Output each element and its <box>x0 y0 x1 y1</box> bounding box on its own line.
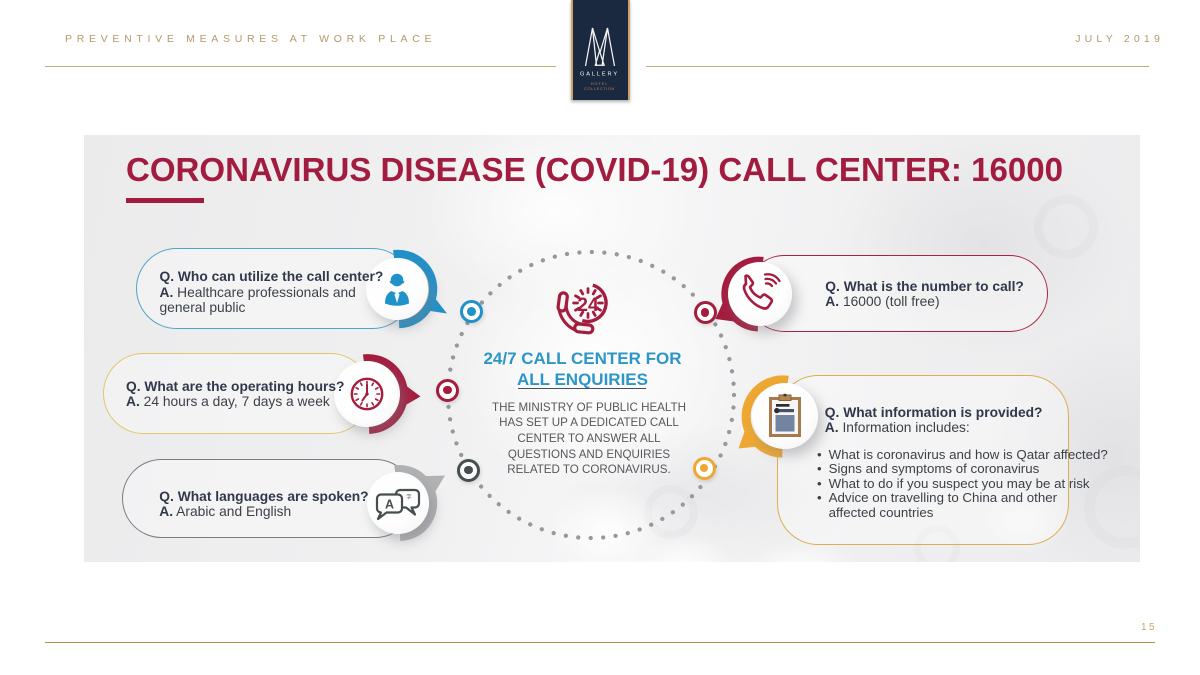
svg-text:字: 字 <box>406 493 411 501</box>
svg-text:GALLERY: GALLERY <box>580 72 619 78</box>
svg-text:A: A <box>385 498 394 512</box>
svg-text:COLLECTION: COLLECTION <box>584 86 615 91</box>
svg-text:24: 24 <box>577 295 599 316</box>
